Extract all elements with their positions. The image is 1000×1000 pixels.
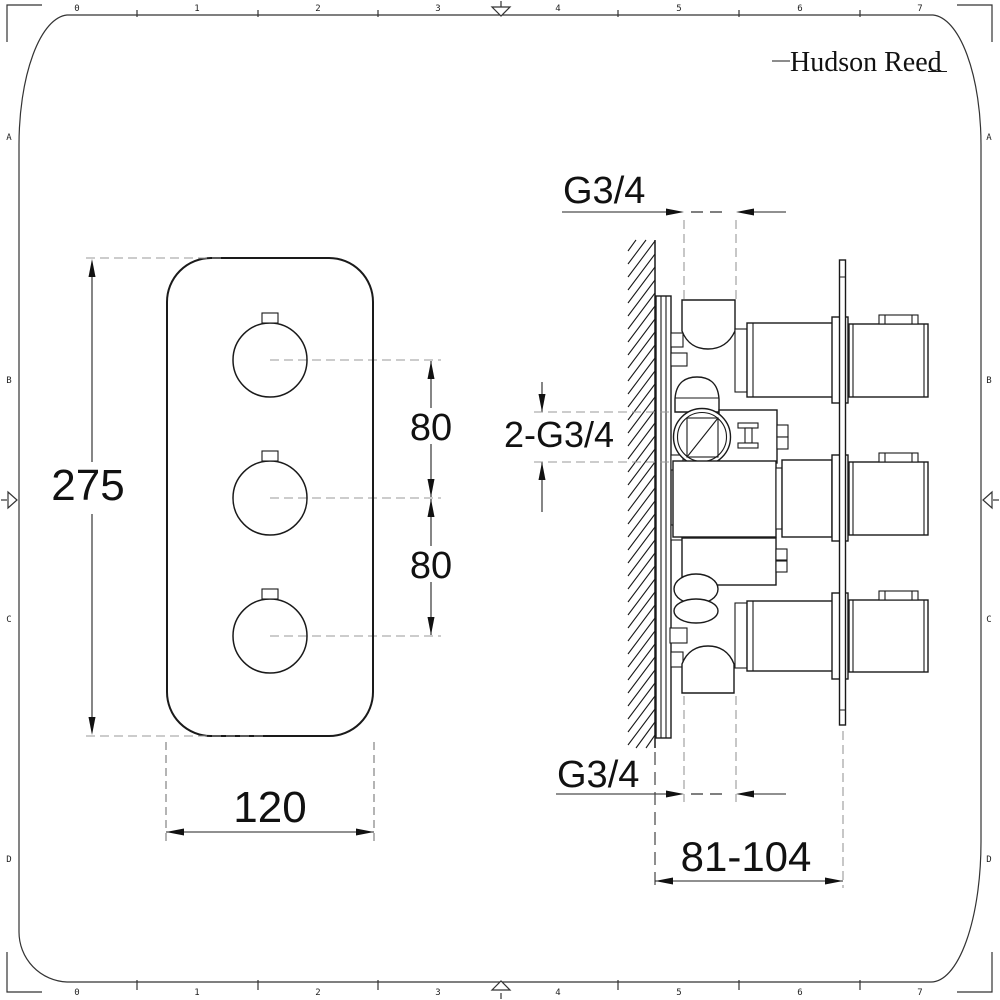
corner-bracket-top-right [957, 5, 992, 42]
dim-275-arrow-up [89, 259, 96, 277]
dim-installation-depth-label: 81-104 [681, 833, 812, 880]
dim-depth-arrow-left [655, 878, 673, 885]
dim-bottom-arrow-right [666, 791, 684, 798]
mounting-lug-bottom [670, 628, 687, 643]
side-view [628, 240, 928, 748]
dim-depth-arrow-right [825, 878, 843, 885]
lower-port-b [776, 561, 787, 572]
side-knob-3 [849, 591, 928, 672]
top-outlet-elbow [682, 300, 735, 349]
dim-120-arrow-left [166, 829, 184, 836]
center-marker-bottom [492, 981, 510, 999]
bottom-pipe-ext-lines [684, 696, 736, 802]
ruler-col-label: 3 [435, 988, 440, 998]
ruler-row-label: C [986, 615, 991, 625]
brand-logo: Hudson Reed [772, 47, 947, 78]
knob3-indicator-tab [262, 589, 278, 599]
mid-cartridge-body [782, 460, 832, 537]
ruler-col-label: 0 [74, 988, 79, 998]
ruler-col-label: 6 [797, 988, 802, 998]
corner-bracket-bottom-left [7, 952, 42, 992]
fixing-bolt-4 [671, 652, 683, 667]
ruler-col-label: 0 [74, 4, 79, 14]
knob2-indicator-tab [262, 451, 278, 461]
logo-text: Hudson Reed [790, 47, 942, 78]
dim-80a-arrow-down [428, 479, 435, 497]
housing-port-b [777, 437, 788, 449]
dim-80b-arrow-up [428, 499, 435, 517]
mounting-lug-top [671, 353, 687, 366]
mounting-plate [656, 296, 671, 738]
dim-275-arrow-down [89, 717, 96, 735]
front-view-dimensions: 275 80 80 120 [51, 258, 452, 846]
ruler-col-label: 2 [315, 4, 320, 14]
dim-80a-arrow-up [428, 361, 435, 379]
ruler-row-label: D [986, 855, 991, 865]
ruler-col-label: 1 [194, 4, 199, 14]
bottom-cartridge-body [747, 601, 833, 671]
center-marker-left [1, 492, 17, 508]
dim-top-arrow-right [666, 209, 684, 216]
ruler-col-label: 4 [555, 4, 560, 14]
drawing-canvas: 0 1 2 3 4 5 6 7 0 1 2 3 4 5 6 7 A B C D … [0, 0, 1000, 1000]
lower-port-a [776, 549, 787, 560]
technical-drawing-sheet: 0 1 2 3 4 5 6 7 0 1 2 3 4 5 6 7 A B C D … [0, 0, 1000, 1000]
spindle-bottom-bar [738, 443, 758, 448]
side-knob-2 [849, 453, 928, 535]
fixing-bolt-1 [671, 333, 683, 347]
dim-inlet-arrow-up [539, 462, 546, 480]
front-view [167, 258, 441, 736]
ruler-row-label: D [6, 855, 11, 865]
dim-inlet-connections-label: 2-G3/4 [504, 414, 614, 455]
dim-inlet-arrow-down [539, 394, 546, 412]
ruler-col-label: 3 [435, 4, 440, 14]
dim-height-label: 275 [51, 461, 124, 510]
ruler-row-label: B [986, 376, 991, 386]
ruler-col-label: 7 [917, 4, 922, 14]
inlet-union-arch [675, 377, 719, 412]
corner-bracket-top-left [7, 5, 42, 42]
mid-link [776, 468, 782, 529]
corner-bracket-bottom-right [957, 952, 992, 992]
ruler-col-label: 6 [797, 4, 802, 14]
dim-top-arrow-left [736, 209, 754, 216]
ruler-row-label: B [6, 376, 11, 386]
top-pipe-ext-lines [684, 220, 736, 302]
dim-120-arrow-right [356, 829, 374, 836]
top-connector [735, 329, 747, 392]
dim-bottom-arrow-left [736, 791, 754, 798]
dim-knob-spacing-top-label: 80 [410, 407, 452, 449]
side-knob-1 [849, 315, 928, 397]
knob1-indicator-tab [262, 313, 278, 323]
ruler-col-label: 1 [194, 988, 199, 998]
dim-80b-arrow-down [428, 617, 435, 635]
ruler-col-label: 5 [676, 4, 681, 14]
center-marker-right [983, 492, 999, 508]
ruler-row-label: A [986, 133, 992, 143]
bottom-connector [735, 603, 747, 668]
bottom-union-lower [674, 599, 718, 623]
spindle-shaft [745, 428, 752, 443]
dim-knob-spacing-bottom-label: 80 [410, 545, 452, 587]
ruler-col-label: 2 [315, 988, 320, 998]
center-marker-top [492, 1, 510, 16]
faceplate [167, 258, 373, 736]
dim-top-connection-label: G3/4 [563, 170, 645, 212]
wall-hatching [628, 240, 655, 748]
ruler-col-label: 5 [676, 988, 681, 998]
ruler-row-label: A [6, 133, 12, 143]
bottom-outlet-elbow [682, 646, 734, 693]
top-cartridge-body [747, 323, 833, 397]
ruler-row-label: C [6, 615, 11, 625]
trim-plate [840, 260, 846, 725]
valve-body-mid [673, 461, 776, 537]
ruler-col-label: 4 [555, 988, 560, 998]
dim-bottom-connection-label: G3/4 [557, 754, 639, 796]
dim-width-label: 120 [233, 783, 306, 832]
housing-port-a [777, 425, 788, 437]
spindle-top-bar [738, 423, 758, 428]
ruler-col-label: 7 [917, 988, 922, 998]
